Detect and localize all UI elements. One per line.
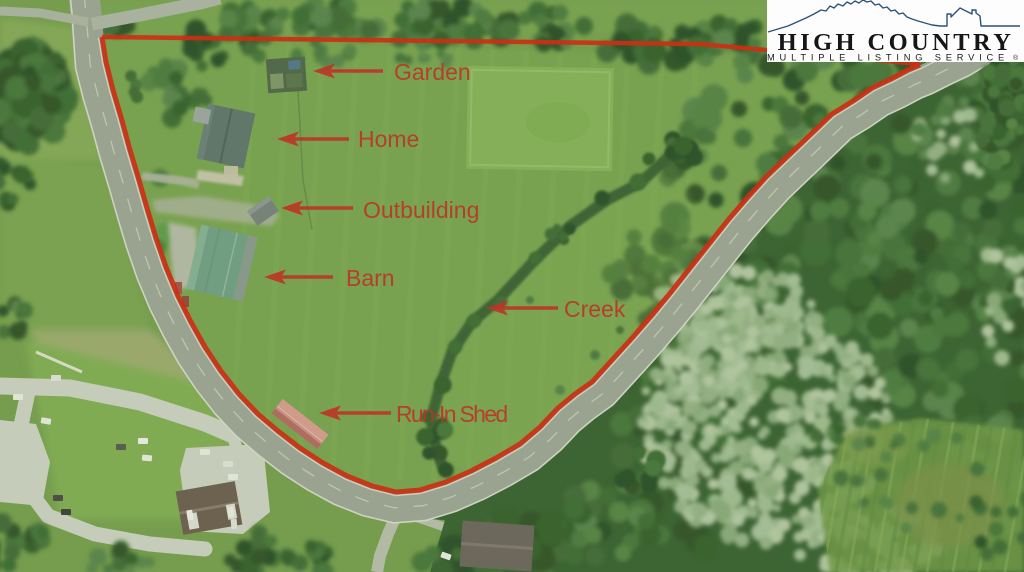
svg-text:Outbuilding: Outbuilding — [363, 197, 479, 223]
svg-text:Home: Home — [358, 126, 419, 152]
svg-text:Barn: Barn — [346, 265, 395, 291]
svg-text:Creek: Creek — [564, 296, 626, 322]
svg-text:MULTIPLE LISTING SERVICE: MULTIPLE LISTING SERVICE — [767, 53, 1009, 63]
svg-text:Garden: Garden — [394, 59, 471, 85]
svg-text:Run-In Shed: Run-In Shed — [396, 401, 507, 427]
svg-text:®: ® — [1013, 54, 1019, 62]
